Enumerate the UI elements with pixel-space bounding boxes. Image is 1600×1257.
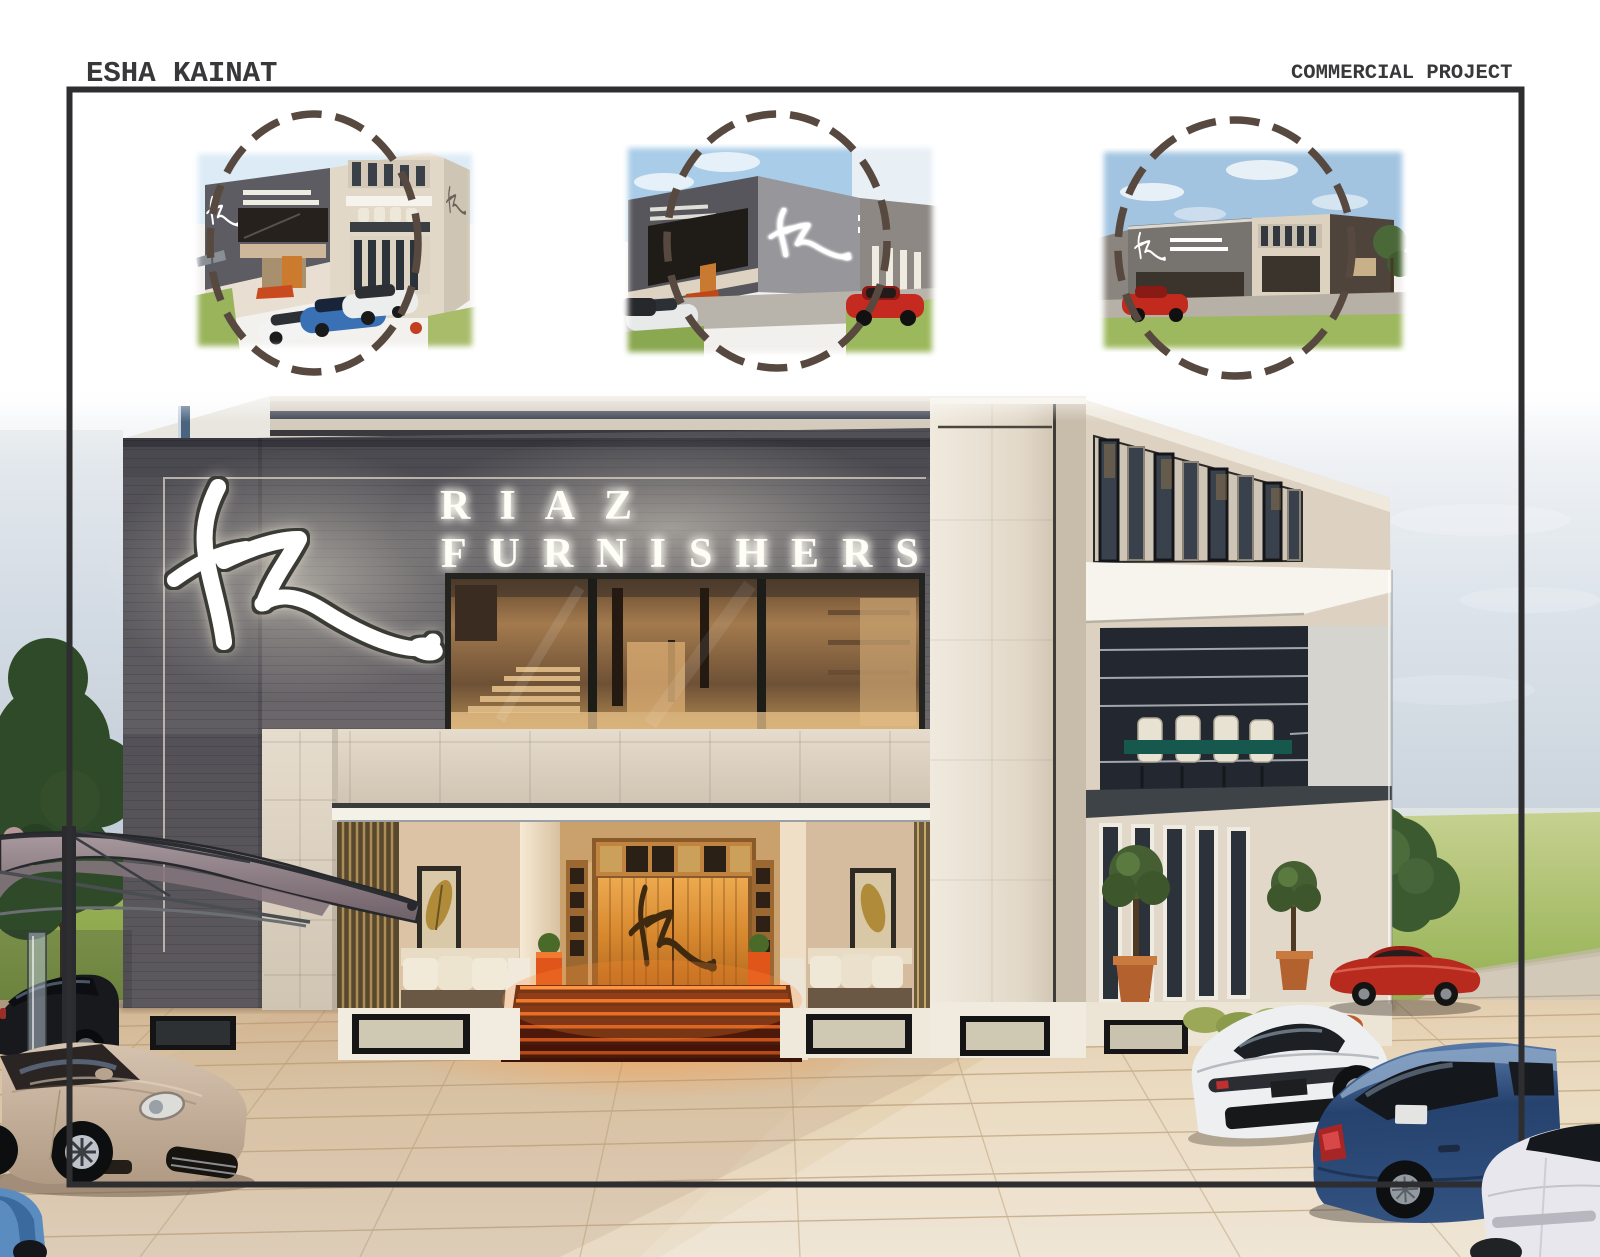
svg-text:RIAZ: RIAZ <box>440 483 661 529</box>
svg-text:FURNISHERS: FURNISHERS <box>441 531 942 577</box>
svg-text:ESHA KAINAT: ESHA KAINAT <box>86 57 277 90</box>
svg-text:COMMERCIAL PROJECT: COMMERCIAL PROJECT <box>1291 62 1512 85</box>
